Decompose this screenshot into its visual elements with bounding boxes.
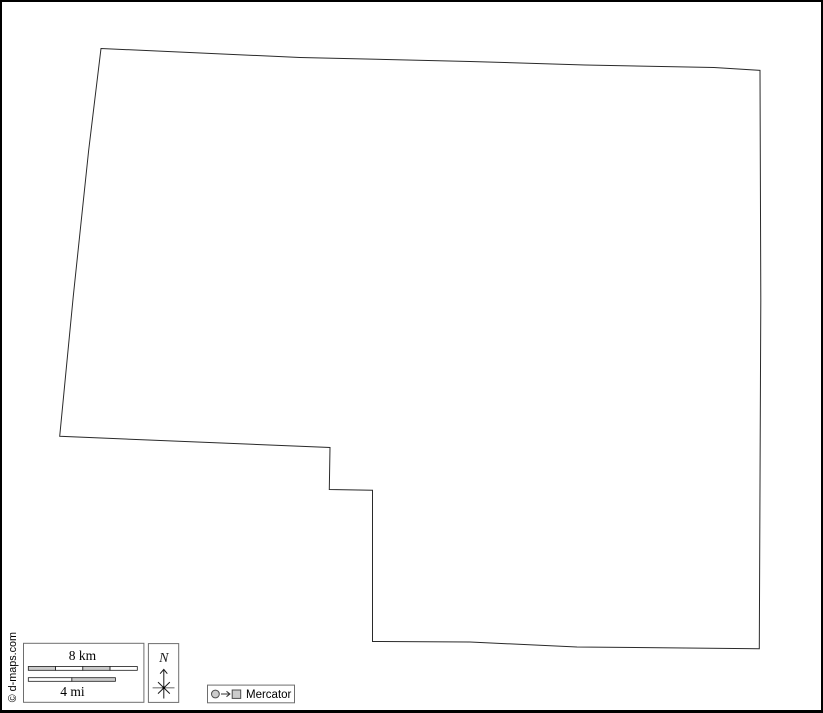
svg-text:Mercator: Mercator xyxy=(246,689,292,701)
svg-text:4 mi: 4 mi xyxy=(60,684,85,699)
svg-text:N: N xyxy=(158,651,169,666)
svg-text:8 km: 8 km xyxy=(69,648,97,663)
svg-text:© d-maps.com: © d-maps.com xyxy=(7,632,19,702)
